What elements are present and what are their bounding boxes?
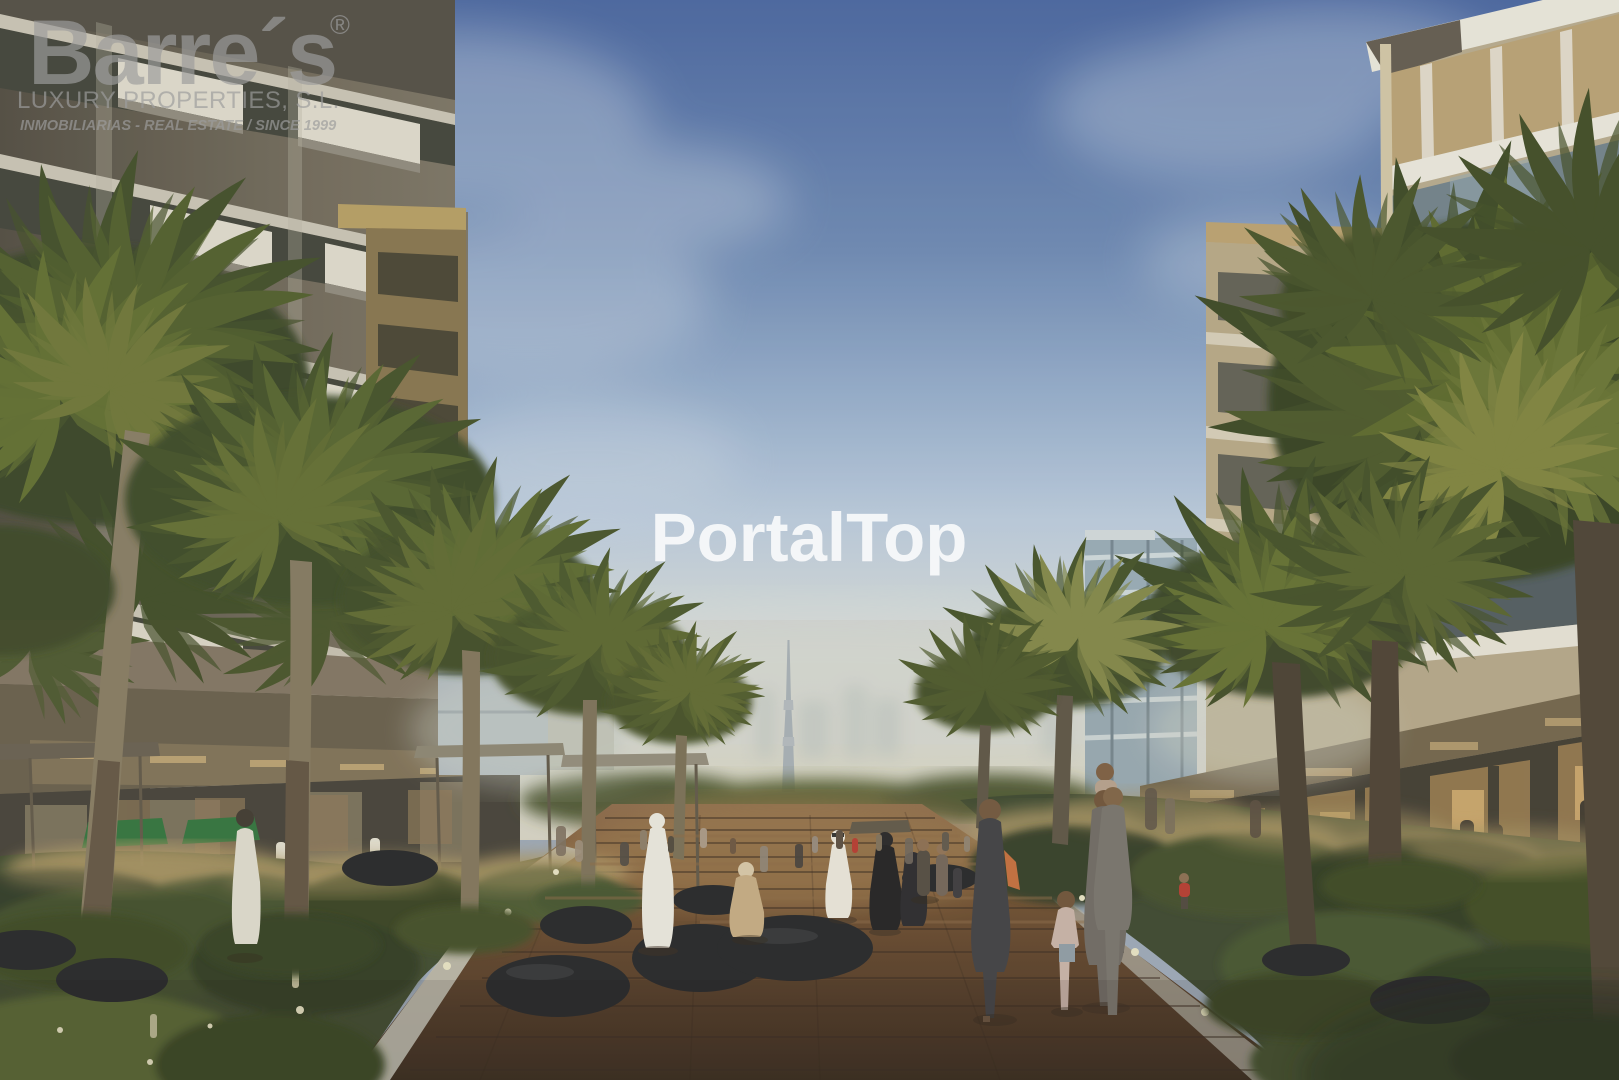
svg-text:®: ® bbox=[330, 10, 350, 40]
svg-text:LUXURY PROPERTIES, S.L.: LUXURY PROPERTIES, S.L. bbox=[17, 87, 340, 114]
svg-text:PortalTop: PortalTop bbox=[651, 499, 968, 576]
svg-text:INMOBILIARIAS - REAL ESTATE /: INMOBILIARIAS - REAL ESTATE / SINCE 1999 bbox=[20, 118, 337, 134]
